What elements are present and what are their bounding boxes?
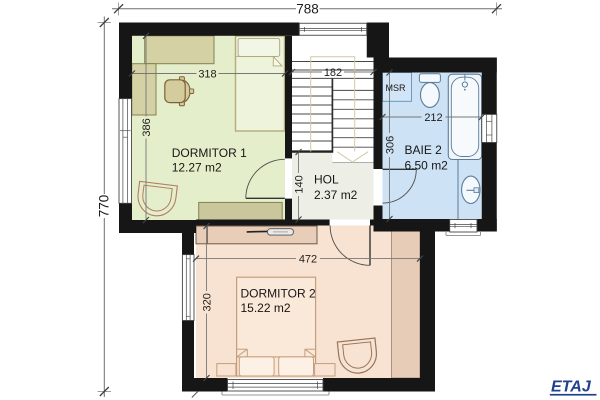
- svg-text:386: 386: [141, 118, 153, 136]
- svg-text:306: 306: [385, 136, 397, 154]
- svg-text:MSR: MSR: [386, 83, 407, 93]
- svg-text:318: 318: [198, 68, 216, 80]
- svg-text:12.27 m2: 12.27 m2: [172, 161, 222, 175]
- svg-text:182: 182: [324, 67, 342, 79]
- svg-text:140: 140: [294, 175, 306, 193]
- svg-text:15.22 m2: 15.22 m2: [241, 301, 291, 315]
- svg-text:HOL: HOL: [314, 172, 339, 186]
- svg-text:2.37 m2: 2.37 m2: [314, 188, 358, 202]
- svg-text:ETAJ: ETAJ: [551, 378, 592, 395]
- svg-text:DORMITOR 1: DORMITOR 1: [172, 146, 247, 160]
- svg-text:472: 472: [299, 254, 317, 266]
- svg-text:320: 320: [202, 293, 214, 311]
- svg-text:770: 770: [97, 195, 112, 218]
- svg-text:BAIE 2: BAIE 2: [405, 143, 443, 157]
- svg-text:212: 212: [424, 112, 442, 124]
- svg-text:DORMITOR 2: DORMITOR 2: [241, 287, 316, 301]
- svg-text:788: 788: [296, 1, 319, 16]
- svg-text:6.50 m2: 6.50 m2: [405, 158, 449, 172]
